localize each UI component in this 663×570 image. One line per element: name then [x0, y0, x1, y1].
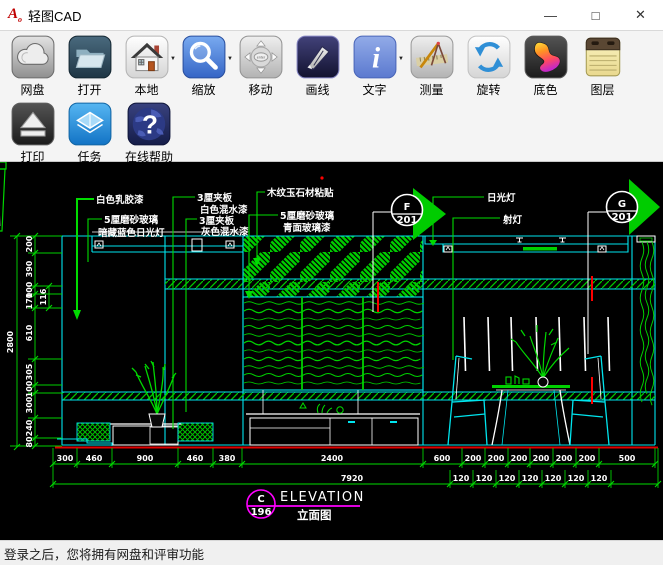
cad-drawing: 白色乳胶漆 5厘磨砂玻璃 暗藏蓝色日光灯 3厘夹板 白色混水漆 3厘夹板 灰色混…: [0, 162, 663, 540]
dim-bottom: 200: [533, 454, 550, 463]
dim-sub: 120: [453, 474, 470, 483]
marker-f-number: 201: [397, 215, 418, 226]
svg-text:i: i: [371, 42, 379, 74]
dim-bottom: 900: [137, 454, 154, 463]
magnifier-icon: [181, 34, 227, 80]
measure-label: 测量: [419, 81, 443, 98]
toolbar: 网盘 打开: [0, 30, 663, 162]
label-stone: 木纹玉石材粘贴: [266, 187, 334, 199]
cad-canvas[interactable]: 白色乳胶漆 5厘磨砂玻璃 暗藏蓝色日光灯 3厘夹板 白色混水漆 3厘夹板 灰色混…: [0, 162, 663, 540]
dim-sub: 120: [499, 474, 516, 483]
measure-button[interactable]: 测量: [403, 34, 460, 98]
dim-bottom: 200: [556, 454, 573, 463]
dim-bottom: 200: [579, 454, 596, 463]
label-frosted-glass-2: 5厘磨砂玻璃: [280, 210, 335, 222]
netdisk-label: 网盘: [20, 81, 44, 98]
color-ribbon-icon: [523, 34, 569, 80]
toolbar-row-1: 网盘 打开: [4, 34, 663, 98]
label-fluorescent: 日光灯: [487, 192, 516, 204]
rotate-label: 旋转: [476, 81, 500, 98]
open-label: 打开: [77, 81, 101, 98]
pen-icon: [295, 34, 341, 80]
dim-sub: 120: [591, 474, 608, 483]
dim-left: 240: [25, 419, 34, 436]
label-frosted-glass-2b: 青面玻璃漆: [283, 222, 331, 234]
label-frosted-glass-1b: 暗藏蓝色日光灯: [98, 227, 165, 239]
home-icon: [124, 34, 170, 80]
local-button[interactable]: ▼ 本地: [118, 34, 175, 98]
text-button[interactable]: i ▼ 文字: [346, 34, 403, 98]
titleblock-letter: C: [257, 494, 264, 505]
titleblock-number: 196: [251, 507, 272, 518]
svg-text:enter: enter: [256, 56, 265, 60]
red-mark-dot: [320, 176, 323, 179]
help-label: 在线帮助: [125, 148, 173, 165]
print-label: 打印: [20, 148, 44, 165]
dim-left-offset: 116: [39, 288, 48, 305]
label-frosted-glass-1: 5厘磨砂玻璃: [104, 214, 159, 226]
help-button[interactable]: ? 在线帮助: [118, 101, 180, 165]
zoom-label: 缩放: [191, 81, 215, 98]
label-plywood-gray-b: 灰色混水漆: [201, 226, 249, 238]
dim-overall-width: 7920: [341, 474, 364, 483]
dim-sub: 120: [545, 474, 562, 483]
dim-bottom: 600: [434, 454, 451, 463]
dim-left: 100: [25, 380, 34, 397]
dim-left: 305: [25, 363, 34, 380]
dim-bottom: 2400: [321, 454, 344, 463]
label-plywood-gray: 3厘夹板: [199, 215, 235, 227]
marker-g-number: 201: [612, 212, 633, 223]
dim-left: 300: [25, 396, 34, 413]
toolbar-row-2: 打印 任务 ? 在线帮助: [4, 101, 663, 165]
bgcolor-button[interactable]: 底色: [517, 34, 574, 98]
dim-bottom: 380: [219, 454, 236, 463]
cloud-disk-icon: [10, 34, 56, 80]
drawline-button[interactable]: 画线: [289, 34, 346, 98]
label-paint: 白色乳胶漆: [96, 194, 144, 206]
dim-overall-height: 2800: [6, 330, 15, 353]
move-button[interactable]: enter 移动: [232, 34, 289, 98]
print-button[interactable]: 打印: [4, 101, 61, 165]
ruler-compass-icon: [409, 34, 455, 80]
rotate-arrows-icon: [466, 34, 512, 80]
text-i-icon: i: [352, 34, 398, 80]
rotate-button[interactable]: 旋转: [460, 34, 517, 98]
dim-bottom: 500: [619, 454, 636, 463]
dim-left: 610: [25, 324, 34, 341]
zoom-button[interactable]: ▼ 缩放: [175, 34, 232, 98]
drawline-label: 画线: [305, 81, 329, 98]
dim-bottom: 200: [465, 454, 482, 463]
dim-left: 200: [25, 235, 34, 252]
app-logo-icon: Ao: [8, 6, 22, 24]
dim-sub: 120: [476, 474, 493, 483]
svg-text:?: ?: [142, 109, 158, 139]
window-controls: — □ ✕: [528, 0, 663, 30]
dpad-icon: enter: [238, 34, 284, 80]
dim-sub: 120: [522, 474, 539, 483]
close-button[interactable]: ✕: [618, 0, 663, 30]
label-plywood-white-b: 白色混水漆: [200, 204, 248, 216]
move-label: 移动: [248, 81, 272, 98]
bgcolor-label: 底色: [533, 81, 557, 98]
local-label: 本地: [134, 81, 158, 98]
status-bar: 登录之后，您将拥有网盘和评审功能: [0, 540, 663, 565]
app-window: Ao 轻图CAD — □ ✕ 网盘: [0, 0, 663, 570]
dim-left: 80: [25, 436, 34, 448]
open-folder-icon: [67, 34, 113, 80]
label-spotlight: 射灯: [502, 214, 523, 226]
text-label: 文字: [362, 81, 386, 98]
stone-panel: [243, 236, 423, 297]
dim-left: 390: [25, 260, 34, 277]
layers-button[interactable]: 图层: [574, 34, 631, 98]
dim-bottom: 460: [86, 454, 103, 463]
window-title: 轻图CAD: [28, 6, 81, 25]
help-globe-icon: ?: [126, 101, 172, 147]
dropbox-icon: [67, 101, 113, 147]
marker-g-letter: G: [618, 199, 626, 210]
notepad-icon: [580, 34, 626, 80]
netdisk-button[interactable]: 网盘: [4, 34, 61, 98]
layers-label: 图层: [590, 81, 614, 98]
status-text: 登录之后，您将拥有网盘和评审功能: [4, 544, 204, 563]
print-eject-icon: [10, 101, 56, 147]
titleblock-elevation-en: ELEVATION: [280, 490, 365, 505]
tasks-label: 任务: [77, 148, 101, 165]
dim-left: 170: [25, 292, 34, 309]
dim-bottom: 200: [488, 454, 505, 463]
dim-bottom: 200: [511, 454, 528, 463]
dim-sub: 120: [568, 474, 585, 483]
label-plywood-white: 3厘夹板: [197, 192, 233, 204]
minimize-button[interactable]: —: [528, 0, 573, 30]
tasks-button[interactable]: 任务: [61, 101, 118, 165]
open-button[interactable]: 打开: [61, 34, 118, 98]
maximize-button[interactable]: □: [573, 0, 618, 30]
title-bar: Ao 轻图CAD — □ ✕: [0, 0, 663, 30]
marker-f-letter: F: [404, 202, 411, 213]
titleblock-elevation-cn: 立面图: [297, 508, 332, 522]
dim-bottom: 300: [57, 454, 74, 463]
dim-bottom: 460: [187, 454, 204, 463]
